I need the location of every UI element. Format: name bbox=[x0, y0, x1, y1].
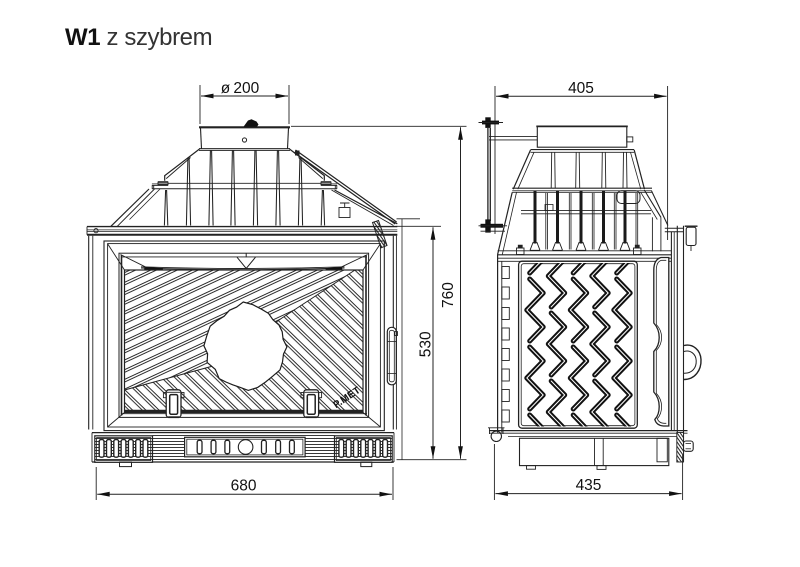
svg-text:ø 200: ø 200 bbox=[221, 80, 260, 97]
svg-text:405: 405 bbox=[568, 80, 594, 97]
svg-text:680: 680 bbox=[231, 478, 257, 495]
svg-text:435: 435 bbox=[576, 477, 602, 494]
svg-text:530: 530 bbox=[417, 331, 434, 357]
svg-text:760: 760 bbox=[440, 282, 457, 308]
